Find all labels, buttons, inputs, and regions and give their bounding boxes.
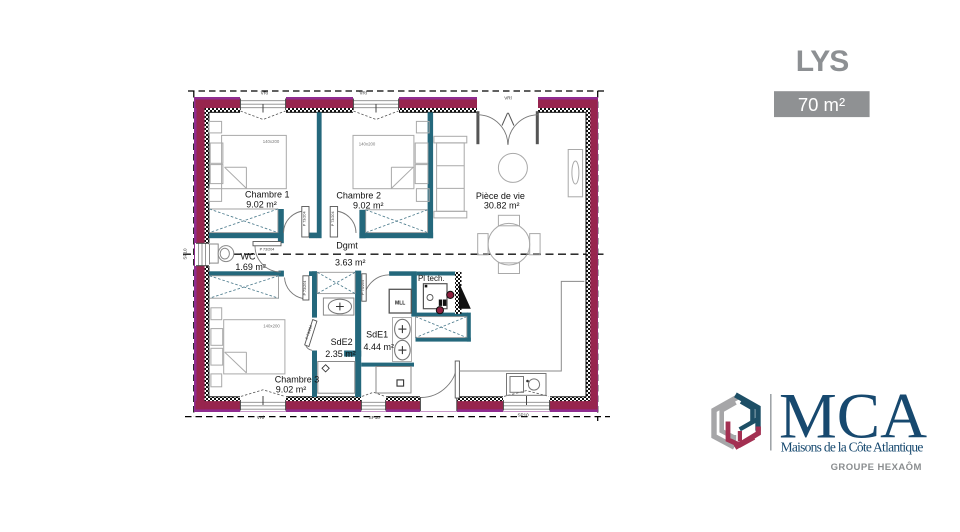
- svg-text:Chambre 3: Chambre 3: [275, 374, 320, 384]
- svg-text:30.82 m²: 30.82 m²: [484, 201, 520, 211]
- svg-text:SdE2: SdE2: [331, 337, 353, 347]
- svg-text:Pl tech.: Pl tech.: [418, 274, 445, 283]
- svg-text:SP10: SP10: [369, 415, 381, 420]
- svg-text:VRl: VRl: [257, 415, 264, 420]
- svg-text:MLL: MLL: [395, 301, 405, 307]
- svg-text:SP10: SP10: [517, 413, 529, 418]
- svg-text:P 73/204: P 73/204: [361, 280, 365, 295]
- svg-text:VRl: VRl: [261, 91, 268, 96]
- svg-text:P 73/204: P 73/204: [303, 281, 307, 296]
- svg-text:P 73/204: P 73/204: [302, 211, 306, 226]
- svg-text:WC: WC: [241, 251, 256, 261]
- svg-text:9.02 m²: 9.02 m²: [246, 200, 277, 210]
- svg-text:Dgmt: Dgmt: [336, 240, 358, 250]
- svg-text:2.35 m²: 2.35 m²: [325, 349, 356, 359]
- svg-text:9.02 m²: 9.02 m²: [353, 201, 384, 211]
- svg-text:P 73/204: P 73/204: [331, 211, 335, 226]
- svg-text:SP10: SP10: [183, 248, 188, 260]
- svg-text:VRl: VRl: [504, 96, 511, 101]
- svg-text:VRl: VRl: [359, 91, 366, 96]
- svg-text:LYS: LYS: [796, 45, 849, 78]
- svg-text:Chambre 2: Chambre 2: [336, 190, 381, 200]
- svg-text:140x200: 140x200: [263, 323, 280, 328]
- svg-text:GROUPE HEXAÔM: GROUPE HEXAÔM: [831, 461, 924, 473]
- svg-text:140x200: 140x200: [359, 141, 376, 146]
- svg-text:4.44 m²: 4.44 m²: [364, 342, 395, 352]
- svg-text:3.63 m²: 3.63 m²: [335, 258, 366, 268]
- svg-text:1.69 m²: 1.69 m²: [235, 262, 266, 272]
- svg-text:SdE1: SdE1: [366, 330, 388, 340]
- svg-text:Chambre 1: Chambre 1: [245, 189, 290, 199]
- svg-text:70 m²: 70 m²: [798, 94, 845, 115]
- svg-text:P 73/204: P 73/204: [260, 248, 275, 252]
- svg-text:Maisons de la Côte Atlantique: Maisons de la Côte Atlantique: [781, 440, 924, 455]
- svg-text:140x200: 140x200: [263, 139, 280, 144]
- svg-text:9.02 m²: 9.02 m²: [276, 384, 307, 394]
